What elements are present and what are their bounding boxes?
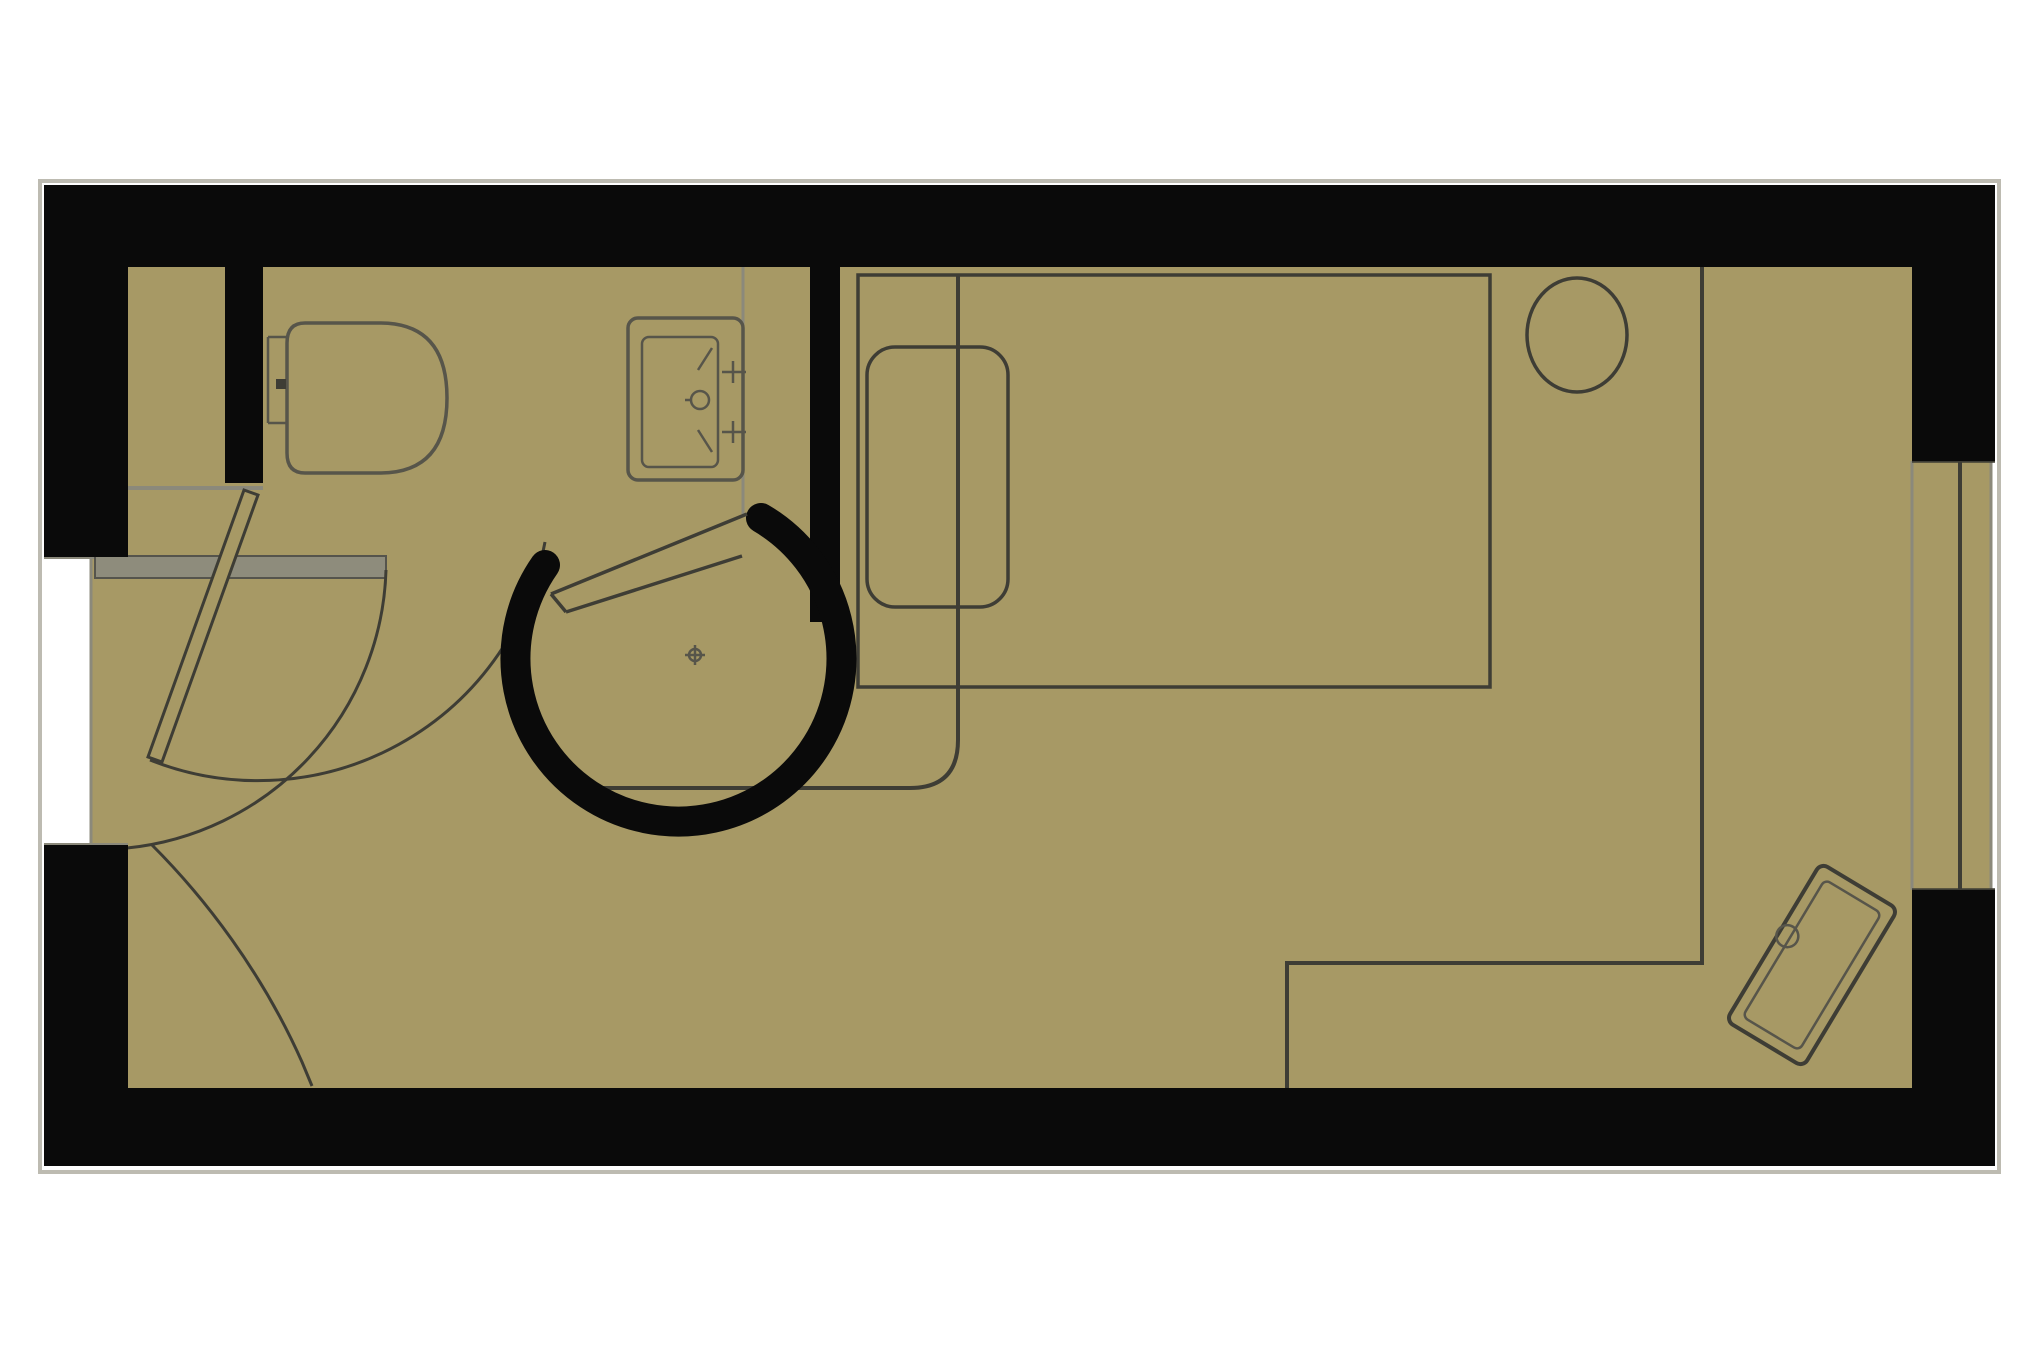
wall-right-upper [1912, 185, 1995, 461]
floor-plan-page [0, 0, 2042, 1358]
entry-door-leaf [95, 556, 386, 578]
floor-area [90, 267, 1991, 1088]
wall-top [44, 185, 1995, 267]
toilet-flush-button [276, 379, 286, 389]
wall-right-lower [1912, 890, 1995, 1166]
wall-left-upper [44, 185, 128, 557]
floor-window-bay [1912, 461, 1991, 890]
wall-left-lower [44, 845, 128, 1166]
floor-plan-drawing [0, 0, 2042, 1358]
floor-entry-recess [90, 557, 128, 845]
wall-toilet-stub [225, 267, 263, 483]
wall-bottom [44, 1088, 1995, 1166]
